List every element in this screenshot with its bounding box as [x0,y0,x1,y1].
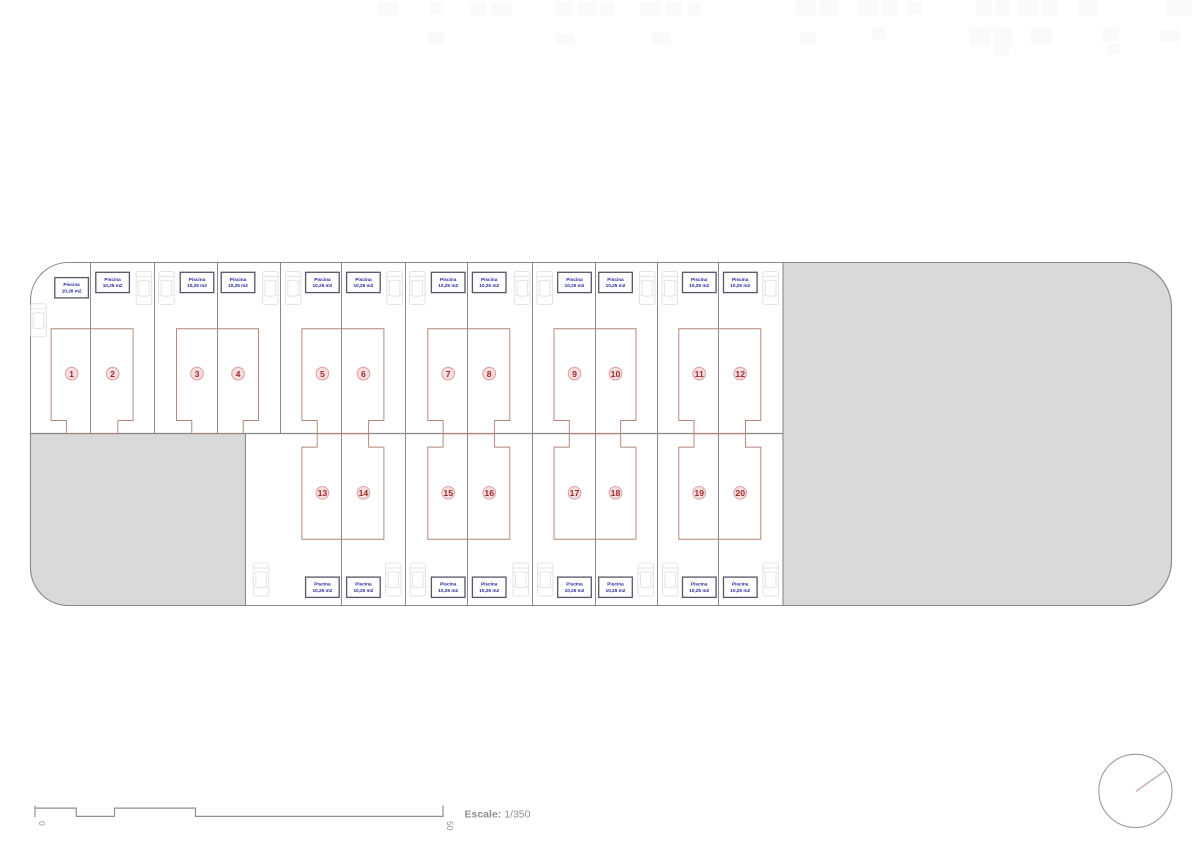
svg-text:Piscina: Piscina [355,277,372,282]
svg-text:10,25 m2: 10,25 m2 [730,283,750,288]
svg-text:10,25 m2: 10,25 m2 [312,283,332,288]
svg-text:10,25 m2: 10,25 m2 [353,283,373,288]
svg-text:Piscina: Piscina [691,582,708,587]
svg-text:Piscina: Piscina [691,277,708,282]
svg-text:Piscina: Piscina [566,277,583,282]
svg-text:Piscina: Piscina [314,277,331,282]
svg-text:10,25 m2: 10,25 m2 [479,283,499,288]
svg-text:3: 3 [195,369,200,379]
svg-text:Escale: 1/350: Escale: 1/350 [465,809,531,821]
svg-text:Piscina: Piscina [230,277,247,282]
svg-text:12: 12 [735,369,745,379]
svg-text:Piscina: Piscina [189,277,206,282]
svg-text:Piscina: Piscina [63,282,80,287]
svg-text:10,25 m2: 10,25 m2 [353,588,373,593]
svg-text:Piscina: Piscina [732,277,749,282]
svg-text:Piscina: Piscina [440,582,457,587]
svg-text:10,25 m2: 10,25 m2 [606,283,626,288]
svg-text:1: 1 [69,369,74,379]
svg-text:14: 14 [359,488,369,498]
svg-text:10,25 m2: 10,25 m2 [479,588,499,593]
svg-text:0: 0 [37,821,47,826]
svg-text:19: 19 [694,488,704,498]
svg-text:Piscina: Piscina [104,277,121,282]
svg-text:5: 5 [320,369,325,379]
svg-text:10,25 m2: 10,25 m2 [187,283,207,288]
svg-text:Piscina: Piscina [355,582,372,587]
svg-text:7: 7 [446,369,451,379]
svg-text:8: 8 [487,369,492,379]
svg-text:10,25 m2: 10,25 m2 [438,283,458,288]
svg-text:10,25 m2: 10,25 m2 [606,588,626,593]
svg-text:Piscina: Piscina [481,582,498,587]
svg-text:10,25 m2: 10,25 m2 [689,283,709,288]
svg-text:10,25 m2: 10,25 m2 [312,588,332,593]
svg-text:11: 11 [695,369,704,379]
svg-text:Piscina: Piscina [314,582,331,587]
svg-text:Piscina: Piscina [732,582,749,587]
svg-text:13: 13 [318,488,328,498]
svg-text:10,25 m2: 10,25 m2 [565,588,585,593]
svg-text:10,25 m2: 10,25 m2 [730,588,750,593]
svg-text:Piscina: Piscina [607,582,624,587]
svg-text:4: 4 [236,369,241,379]
svg-text:Piscina: Piscina [440,277,457,282]
svg-text:6: 6 [361,369,366,379]
svg-text:9: 9 [572,369,577,379]
svg-text:Piscina: Piscina [607,277,624,282]
svg-text:10,25 m2: 10,25 m2 [565,283,585,288]
svg-text:10,25 m2: 10,25 m2 [438,588,458,593]
svg-text:Piscina: Piscina [566,582,583,587]
svg-text:15: 15 [443,488,453,498]
svg-text:17: 17 [570,488,580,498]
svg-text:2: 2 [110,369,115,379]
svg-text:50: 50 [445,821,455,831]
svg-text:20: 20 [735,488,745,498]
svg-text:16: 16 [484,488,494,498]
svg-text:10,25 m2: 10,25 m2 [228,283,248,288]
svg-text:10: 10 [611,369,621,379]
svg-text:10,25 m2: 10,25 m2 [689,588,709,593]
svg-text:10,26 m2: 10,26 m2 [62,289,82,294]
svg-text:Piscina: Piscina [481,277,498,282]
svg-text:18: 18 [611,488,621,498]
svg-text:10,25 m2: 10,25 m2 [103,283,123,288]
